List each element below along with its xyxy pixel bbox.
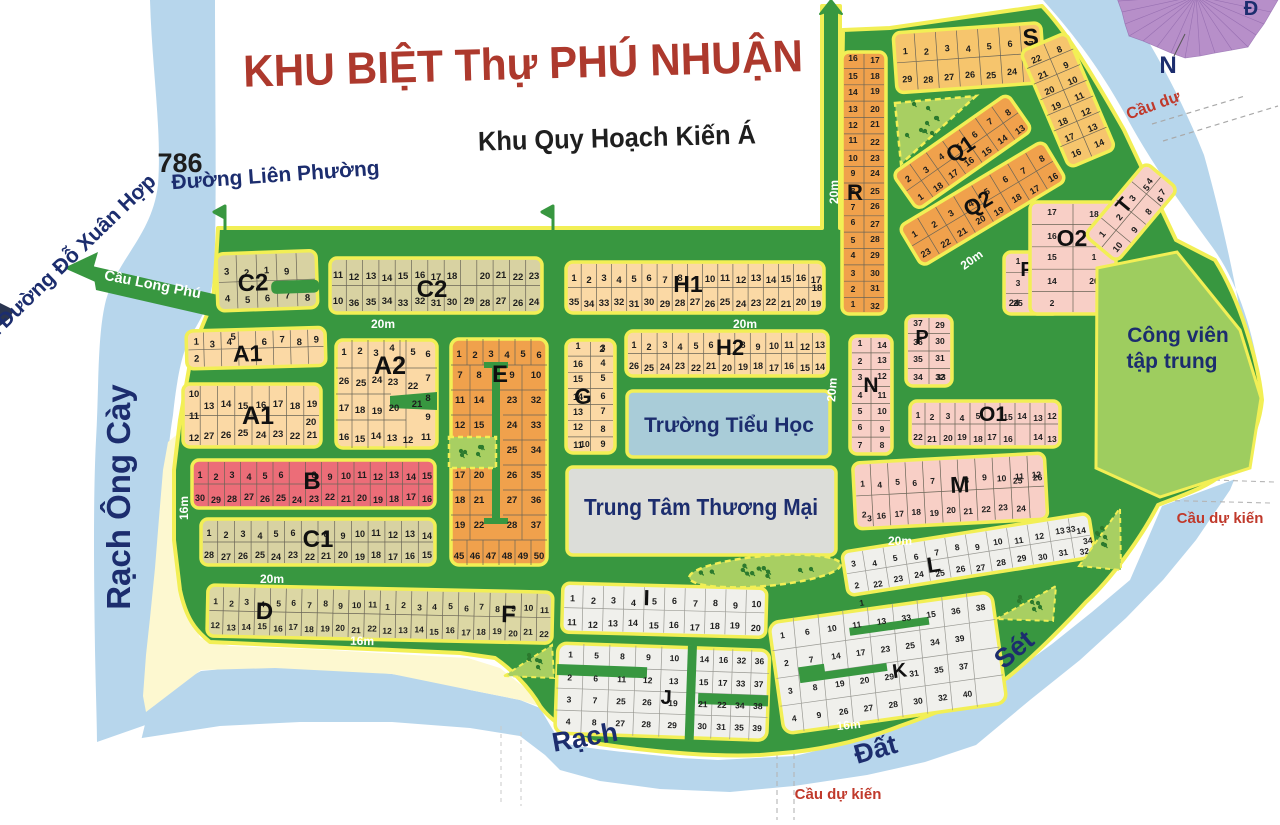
svg-text:20: 20 bbox=[306, 417, 317, 428]
svg-text:H2: H2 bbox=[716, 335, 744, 360]
svg-text:10: 10 bbox=[992, 536, 1003, 547]
svg-text:16: 16 bbox=[669, 620, 679, 630]
svg-text:33: 33 bbox=[901, 612, 912, 623]
svg-text:2: 2 bbox=[194, 354, 200, 365]
svg-text:28: 28 bbox=[641, 719, 651, 729]
svg-text:23: 23 bbox=[529, 271, 540, 282]
svg-text:11: 11 bbox=[333, 270, 344, 281]
svg-text:17: 17 bbox=[718, 678, 728, 688]
svg-text:12: 12 bbox=[210, 620, 220, 630]
svg-text:7: 7 bbox=[693, 598, 698, 608]
svg-text:34: 34 bbox=[735, 700, 745, 710]
svg-text:14: 14 bbox=[1017, 411, 1027, 421]
svg-text:Rạch Ông Cày: Rạch Ông Cày bbox=[99, 384, 137, 610]
svg-text:17: 17 bbox=[769, 363, 779, 373]
svg-text:9: 9 bbox=[733, 601, 738, 611]
svg-text:6: 6 bbox=[858, 422, 863, 432]
svg-text:13: 13 bbox=[669, 676, 679, 686]
svg-text:N: N bbox=[863, 374, 878, 397]
svg-text:8: 8 bbox=[305, 293, 311, 304]
svg-text:23: 23 bbox=[273, 429, 284, 440]
svg-text:6: 6 bbox=[1007, 39, 1013, 49]
svg-text:30: 30 bbox=[195, 493, 205, 503]
svg-text:17: 17 bbox=[690, 622, 700, 632]
svg-text:5: 5 bbox=[895, 477, 901, 487]
svg-text:5: 5 bbox=[262, 471, 267, 481]
svg-text:9: 9 bbox=[880, 424, 885, 434]
svg-text:15: 15 bbox=[1047, 252, 1057, 262]
svg-text:2: 2 bbox=[1050, 298, 1055, 308]
svg-text:30: 30 bbox=[447, 297, 458, 308]
svg-text:5: 5 bbox=[986, 41, 992, 51]
svg-text:2: 2 bbox=[591, 596, 596, 606]
svg-text:34: 34 bbox=[382, 296, 393, 307]
svg-text:35: 35 bbox=[569, 297, 580, 308]
svg-text:24: 24 bbox=[1016, 503, 1026, 513]
svg-text:20: 20 bbox=[796, 297, 807, 308]
svg-text:30: 30 bbox=[1037, 551, 1048, 562]
svg-text:3: 3 bbox=[488, 349, 493, 360]
svg-text:15: 15 bbox=[422, 471, 432, 481]
svg-text:17: 17 bbox=[288, 622, 298, 632]
svg-text:9: 9 bbox=[600, 439, 605, 449]
svg-text:15: 15 bbox=[398, 271, 409, 282]
svg-text:24: 24 bbox=[507, 420, 518, 431]
svg-text:8: 8 bbox=[713, 598, 718, 608]
svg-text:14: 14 bbox=[422, 531, 432, 541]
svg-text:32: 32 bbox=[614, 297, 625, 308]
svg-text:10: 10 bbox=[333, 296, 344, 307]
svg-text:8: 8 bbox=[425, 393, 430, 404]
svg-text:R: R bbox=[847, 180, 863, 205]
svg-text:14: 14 bbox=[382, 273, 393, 284]
svg-text:7: 7 bbox=[425, 373, 430, 384]
svg-text:21: 21 bbox=[781, 299, 792, 310]
svg-text:14: 14 bbox=[1076, 525, 1087, 536]
svg-text:H1: H1 bbox=[673, 271, 703, 297]
svg-text:18: 18 bbox=[753, 361, 763, 371]
svg-text:3: 3 bbox=[611, 595, 616, 605]
svg-text:20m: 20m bbox=[371, 317, 395, 331]
svg-text:9: 9 bbox=[284, 266, 290, 277]
svg-text:17: 17 bbox=[1047, 207, 1057, 217]
svg-text:21: 21 bbox=[927, 434, 937, 444]
svg-text:22: 22 bbox=[325, 492, 335, 502]
svg-text:25: 25 bbox=[905, 640, 916, 651]
svg-text:9: 9 bbox=[425, 412, 430, 423]
svg-text:9: 9 bbox=[646, 652, 651, 662]
svg-text:28: 28 bbox=[675, 298, 686, 309]
svg-text:33: 33 bbox=[736, 678, 746, 688]
svg-text:22: 22 bbox=[513, 272, 524, 283]
svg-text:1: 1 bbox=[631, 340, 636, 350]
svg-text:22: 22 bbox=[717, 700, 727, 710]
svg-text:20: 20 bbox=[338, 550, 348, 560]
svg-text:20: 20 bbox=[943, 433, 953, 443]
svg-text:18: 18 bbox=[973, 434, 983, 444]
svg-text:C2: C2 bbox=[237, 269, 269, 297]
svg-text:26: 26 bbox=[221, 430, 232, 441]
svg-text:17: 17 bbox=[273, 399, 284, 410]
svg-text:23: 23 bbox=[998, 502, 1008, 512]
svg-text:2: 2 bbox=[586, 275, 591, 286]
svg-text:1: 1 bbox=[197, 470, 202, 480]
svg-text:15: 15 bbox=[781, 274, 792, 285]
svg-text:21: 21 bbox=[412, 399, 423, 410]
svg-text:11: 11 bbox=[540, 605, 549, 615]
svg-text:4: 4 bbox=[851, 250, 856, 260]
svg-text:12: 12 bbox=[573, 422, 583, 432]
svg-text:12: 12 bbox=[455, 420, 466, 431]
svg-text:17: 17 bbox=[461, 627, 471, 637]
svg-text:6: 6 bbox=[593, 673, 598, 683]
svg-text:26: 26 bbox=[629, 361, 639, 371]
svg-text:11: 11 bbox=[849, 135, 858, 145]
svg-text:2: 2 bbox=[646, 342, 651, 352]
svg-text:4: 4 bbox=[432, 602, 437, 612]
svg-text:10: 10 bbox=[524, 603, 534, 613]
svg-text:29: 29 bbox=[660, 299, 671, 310]
svg-text:14: 14 bbox=[766, 275, 777, 286]
svg-text:11: 11 bbox=[852, 619, 863, 630]
svg-text:6: 6 bbox=[646, 273, 651, 284]
svg-text:36: 36 bbox=[755, 656, 765, 666]
svg-text:3: 3 bbox=[858, 372, 863, 382]
svg-text:7: 7 bbox=[592, 695, 597, 705]
svg-text:26: 26 bbox=[1033, 472, 1043, 482]
svg-text:21: 21 bbox=[341, 494, 351, 504]
svg-text:18: 18 bbox=[455, 495, 466, 506]
svg-text:25: 25 bbox=[616, 696, 626, 706]
svg-text:9: 9 bbox=[313, 335, 319, 346]
svg-text:4: 4 bbox=[246, 472, 251, 482]
svg-text:34: 34 bbox=[913, 372, 923, 382]
svg-text:2: 2 bbox=[472, 350, 477, 361]
svg-text:5: 5 bbox=[652, 596, 657, 606]
svg-text:16: 16 bbox=[1003, 434, 1013, 444]
svg-text:3: 3 bbox=[244, 597, 249, 607]
svg-text:30: 30 bbox=[913, 695, 924, 706]
svg-text:3: 3 bbox=[240, 529, 245, 539]
svg-text:11: 11 bbox=[878, 390, 887, 400]
svg-text:19: 19 bbox=[834, 678, 845, 689]
svg-text:49: 49 bbox=[518, 551, 529, 562]
svg-text:10: 10 bbox=[189, 389, 200, 400]
svg-text:2: 2 bbox=[401, 600, 406, 610]
svg-text:18: 18 bbox=[812, 283, 823, 294]
svg-text:11: 11 bbox=[357, 470, 367, 480]
svg-text:11: 11 bbox=[421, 432, 432, 443]
svg-text:38: 38 bbox=[975, 602, 986, 613]
svg-text:19: 19 bbox=[730, 620, 740, 630]
svg-text:4: 4 bbox=[858, 390, 863, 400]
svg-text:16: 16 bbox=[876, 510, 886, 520]
svg-text:27: 27 bbox=[615, 718, 625, 728]
svg-text:10: 10 bbox=[670, 653, 680, 663]
svg-text:17: 17 bbox=[339, 403, 350, 414]
svg-text:14: 14 bbox=[414, 624, 424, 634]
svg-text:28: 28 bbox=[923, 74, 934, 85]
svg-text:8: 8 bbox=[600, 424, 605, 434]
svg-text:19: 19 bbox=[929, 508, 939, 518]
svg-text:40: 40 bbox=[962, 688, 973, 699]
svg-text:20m: 20m bbox=[827, 180, 841, 204]
svg-text:Cầu dự kiến: Cầu dự kiến bbox=[795, 786, 882, 803]
svg-text:7: 7 bbox=[279, 334, 285, 345]
svg-text:29: 29 bbox=[667, 720, 677, 730]
svg-text:7: 7 bbox=[457, 370, 462, 381]
svg-text:J: J bbox=[660, 687, 672, 709]
svg-text:5: 5 bbox=[276, 598, 281, 608]
svg-text:1: 1 bbox=[1092, 252, 1097, 262]
svg-text:22: 22 bbox=[408, 381, 419, 392]
svg-text:28: 28 bbox=[480, 298, 491, 309]
svg-text:15: 15 bbox=[848, 71, 858, 81]
svg-text:15: 15 bbox=[355, 434, 366, 445]
svg-text:18: 18 bbox=[355, 405, 366, 416]
svg-text:26: 26 bbox=[260, 494, 270, 504]
svg-text:20m: 20m bbox=[733, 317, 757, 331]
svg-text:18: 18 bbox=[447, 271, 458, 282]
svg-text:31: 31 bbox=[909, 668, 920, 679]
svg-text:50: 50 bbox=[534, 551, 545, 562]
svg-text:11: 11 bbox=[455, 395, 466, 406]
svg-text:14: 14 bbox=[628, 618, 638, 628]
svg-text:14: 14 bbox=[815, 362, 825, 372]
svg-text:1: 1 bbox=[571, 273, 577, 284]
svg-text:36: 36 bbox=[531, 495, 542, 506]
svg-text:13: 13 bbox=[398, 625, 408, 635]
svg-text:18: 18 bbox=[911, 507, 921, 517]
svg-text:35: 35 bbox=[933, 664, 944, 675]
svg-text:21: 21 bbox=[307, 430, 318, 441]
svg-text:11: 11 bbox=[617, 674, 627, 684]
svg-text:2: 2 bbox=[858, 356, 863, 366]
svg-text:32: 32 bbox=[870, 301, 880, 311]
svg-text:12: 12 bbox=[349, 272, 360, 283]
svg-text:19: 19 bbox=[355, 552, 365, 562]
svg-text:19: 19 bbox=[320, 623, 330, 633]
svg-text:33: 33 bbox=[936, 372, 946, 382]
svg-text:29: 29 bbox=[464, 296, 475, 307]
svg-text:1: 1 bbox=[568, 649, 573, 659]
svg-text:13: 13 bbox=[405, 529, 415, 539]
svg-text:4: 4 bbox=[600, 358, 605, 368]
svg-text:9: 9 bbox=[509, 370, 514, 381]
svg-text:25: 25 bbox=[870, 186, 880, 196]
svg-text:28: 28 bbox=[996, 557, 1007, 568]
svg-text:10: 10 bbox=[997, 473, 1007, 483]
svg-text:23: 23 bbox=[893, 573, 904, 584]
svg-text:13: 13 bbox=[877, 355, 887, 365]
svg-text:17: 17 bbox=[455, 470, 466, 481]
svg-text:27: 27 bbox=[221, 552, 231, 562]
svg-text:17: 17 bbox=[388, 552, 398, 562]
svg-text:12: 12 bbox=[1047, 411, 1057, 421]
svg-text:M: M bbox=[950, 471, 971, 498]
svg-text:3: 3 bbox=[601, 273, 606, 284]
svg-text:6: 6 bbox=[425, 349, 430, 360]
svg-text:6: 6 bbox=[672, 596, 677, 606]
svg-text:12: 12 bbox=[189, 433, 200, 444]
svg-text:16: 16 bbox=[405, 551, 415, 561]
svg-text:33: 33 bbox=[1065, 523, 1076, 534]
svg-text:14: 14 bbox=[1047, 276, 1057, 286]
svg-text:35: 35 bbox=[366, 297, 377, 308]
svg-text:22: 22 bbox=[873, 578, 884, 589]
svg-text:35: 35 bbox=[913, 354, 923, 364]
svg-text:26: 26 bbox=[507, 470, 518, 481]
svg-text:3: 3 bbox=[851, 268, 856, 278]
svg-text:25: 25 bbox=[507, 445, 518, 456]
svg-text:12: 12 bbox=[1034, 530, 1045, 541]
svg-text:C2: C2 bbox=[417, 276, 448, 303]
svg-text:19: 19 bbox=[373, 495, 383, 505]
svg-text:3: 3 bbox=[229, 470, 234, 480]
svg-text:12: 12 bbox=[800, 342, 810, 352]
svg-text:19: 19 bbox=[372, 406, 383, 417]
svg-text:13: 13 bbox=[608, 618, 618, 628]
svg-text:16: 16 bbox=[1047, 231, 1057, 241]
svg-text:22: 22 bbox=[305, 552, 315, 562]
svg-text:16: 16 bbox=[445, 625, 455, 635]
svg-text:13: 13 bbox=[389, 470, 399, 480]
svg-text:37: 37 bbox=[958, 661, 969, 672]
svg-text:2: 2 bbox=[213, 472, 218, 482]
svg-text:22: 22 bbox=[981, 504, 991, 514]
svg-text:1: 1 bbox=[916, 410, 921, 420]
svg-text:29: 29 bbox=[870, 250, 880, 260]
svg-text:8: 8 bbox=[323, 598, 328, 608]
svg-text:12: 12 bbox=[403, 435, 414, 446]
svg-text:5: 5 bbox=[594, 650, 599, 660]
svg-text:24: 24 bbox=[256, 430, 267, 441]
svg-text:20: 20 bbox=[357, 493, 367, 503]
svg-text:27: 27 bbox=[870, 219, 880, 229]
svg-text:A1: A1 bbox=[233, 340, 263, 367]
svg-text:10: 10 bbox=[751, 599, 761, 609]
svg-text:1: 1 bbox=[456, 349, 462, 360]
svg-text:31: 31 bbox=[870, 283, 880, 293]
svg-text:2: 2 bbox=[851, 284, 856, 294]
svg-text:27: 27 bbox=[944, 72, 955, 83]
svg-text:17: 17 bbox=[406, 492, 416, 502]
svg-text:24: 24 bbox=[1007, 66, 1018, 77]
svg-text:20: 20 bbox=[870, 104, 880, 114]
svg-text:22: 22 bbox=[290, 431, 301, 442]
svg-text:22: 22 bbox=[691, 363, 701, 373]
svg-text:35: 35 bbox=[734, 722, 744, 732]
svg-text:15: 15 bbox=[649, 620, 659, 630]
svg-text:24: 24 bbox=[736, 299, 747, 310]
svg-text:13: 13 bbox=[751, 273, 762, 284]
svg-text:28: 28 bbox=[204, 550, 214, 560]
svg-text:20: 20 bbox=[480, 271, 491, 282]
svg-text:23: 23 bbox=[309, 494, 319, 504]
svg-text:47: 47 bbox=[486, 551, 497, 562]
svg-text:14: 14 bbox=[700, 654, 710, 664]
svg-text:23: 23 bbox=[880, 643, 891, 654]
svg-text:5: 5 bbox=[851, 235, 856, 245]
svg-text:12: 12 bbox=[588, 620, 598, 630]
svg-text:46: 46 bbox=[470, 551, 481, 562]
svg-text:18: 18 bbox=[389, 494, 399, 504]
svg-text:5: 5 bbox=[520, 349, 526, 360]
svg-text:14: 14 bbox=[848, 87, 858, 97]
svg-text:10: 10 bbox=[355, 529, 365, 539]
svg-text:37: 37 bbox=[531, 520, 542, 531]
svg-text:21: 21 bbox=[870, 119, 880, 129]
svg-text:15: 15 bbox=[926, 609, 937, 620]
svg-text:20m: 20m bbox=[824, 377, 840, 402]
svg-text:11: 11 bbox=[1014, 535, 1025, 546]
svg-text:13: 13 bbox=[387, 433, 398, 444]
svg-text:B: B bbox=[303, 468, 320, 495]
svg-text:27: 27 bbox=[496, 296, 507, 307]
svg-text:3: 3 bbox=[224, 267, 230, 278]
svg-text:C1: C1 bbox=[303, 526, 334, 553]
svg-text:17: 17 bbox=[855, 647, 866, 658]
svg-text:16: 16 bbox=[339, 432, 350, 443]
svg-text:28: 28 bbox=[227, 494, 237, 504]
svg-text:34: 34 bbox=[584, 299, 595, 310]
svg-text:33: 33 bbox=[398, 298, 409, 309]
svg-text:10: 10 bbox=[341, 471, 351, 481]
svg-text:9: 9 bbox=[755, 342, 760, 352]
svg-text:12: 12 bbox=[736, 275, 747, 286]
svg-text:28: 28 bbox=[870, 234, 880, 244]
svg-text:6: 6 bbox=[536, 350, 541, 361]
svg-text:29: 29 bbox=[935, 320, 945, 330]
svg-text:19: 19 bbox=[957, 432, 967, 442]
svg-text:22: 22 bbox=[913, 432, 923, 442]
svg-text:39: 39 bbox=[954, 633, 965, 644]
svg-text:2: 2 bbox=[357, 346, 362, 357]
svg-text:31: 31 bbox=[1058, 547, 1069, 558]
svg-text:8: 8 bbox=[495, 604, 500, 614]
svg-text:22: 22 bbox=[474, 520, 485, 531]
svg-text:10: 10 bbox=[705, 274, 716, 285]
svg-text:11: 11 bbox=[371, 528, 381, 538]
svg-text:6: 6 bbox=[291, 598, 296, 608]
svg-text:13: 13 bbox=[204, 401, 215, 412]
svg-text:17: 17 bbox=[987, 432, 997, 442]
svg-text:O1: O1 bbox=[979, 403, 1007, 426]
svg-text:38: 38 bbox=[753, 701, 763, 711]
svg-text:39: 39 bbox=[752, 723, 762, 733]
svg-text:24: 24 bbox=[870, 168, 880, 178]
svg-text:8: 8 bbox=[880, 440, 885, 450]
svg-text:P: P bbox=[915, 327, 928, 349]
svg-text:31: 31 bbox=[629, 299, 640, 310]
svg-text:26: 26 bbox=[965, 69, 976, 80]
svg-text:30: 30 bbox=[644, 297, 655, 308]
svg-text:17: 17 bbox=[870, 55, 880, 65]
svg-text:26: 26 bbox=[870, 201, 880, 211]
svg-text:30: 30 bbox=[935, 336, 945, 346]
svg-text:25: 25 bbox=[720, 297, 731, 308]
svg-text:13: 13 bbox=[226, 622, 236, 632]
svg-text:9: 9 bbox=[340, 531, 345, 541]
svg-text:20: 20 bbox=[389, 403, 400, 414]
svg-text:14: 14 bbox=[241, 622, 251, 632]
svg-text:2: 2 bbox=[567, 672, 572, 682]
svg-text:27: 27 bbox=[863, 702, 874, 713]
svg-text:22: 22 bbox=[367, 623, 377, 633]
svg-text:4: 4 bbox=[631, 598, 636, 608]
svg-text:37: 37 bbox=[754, 679, 764, 689]
svg-text:21: 21 bbox=[963, 506, 973, 516]
